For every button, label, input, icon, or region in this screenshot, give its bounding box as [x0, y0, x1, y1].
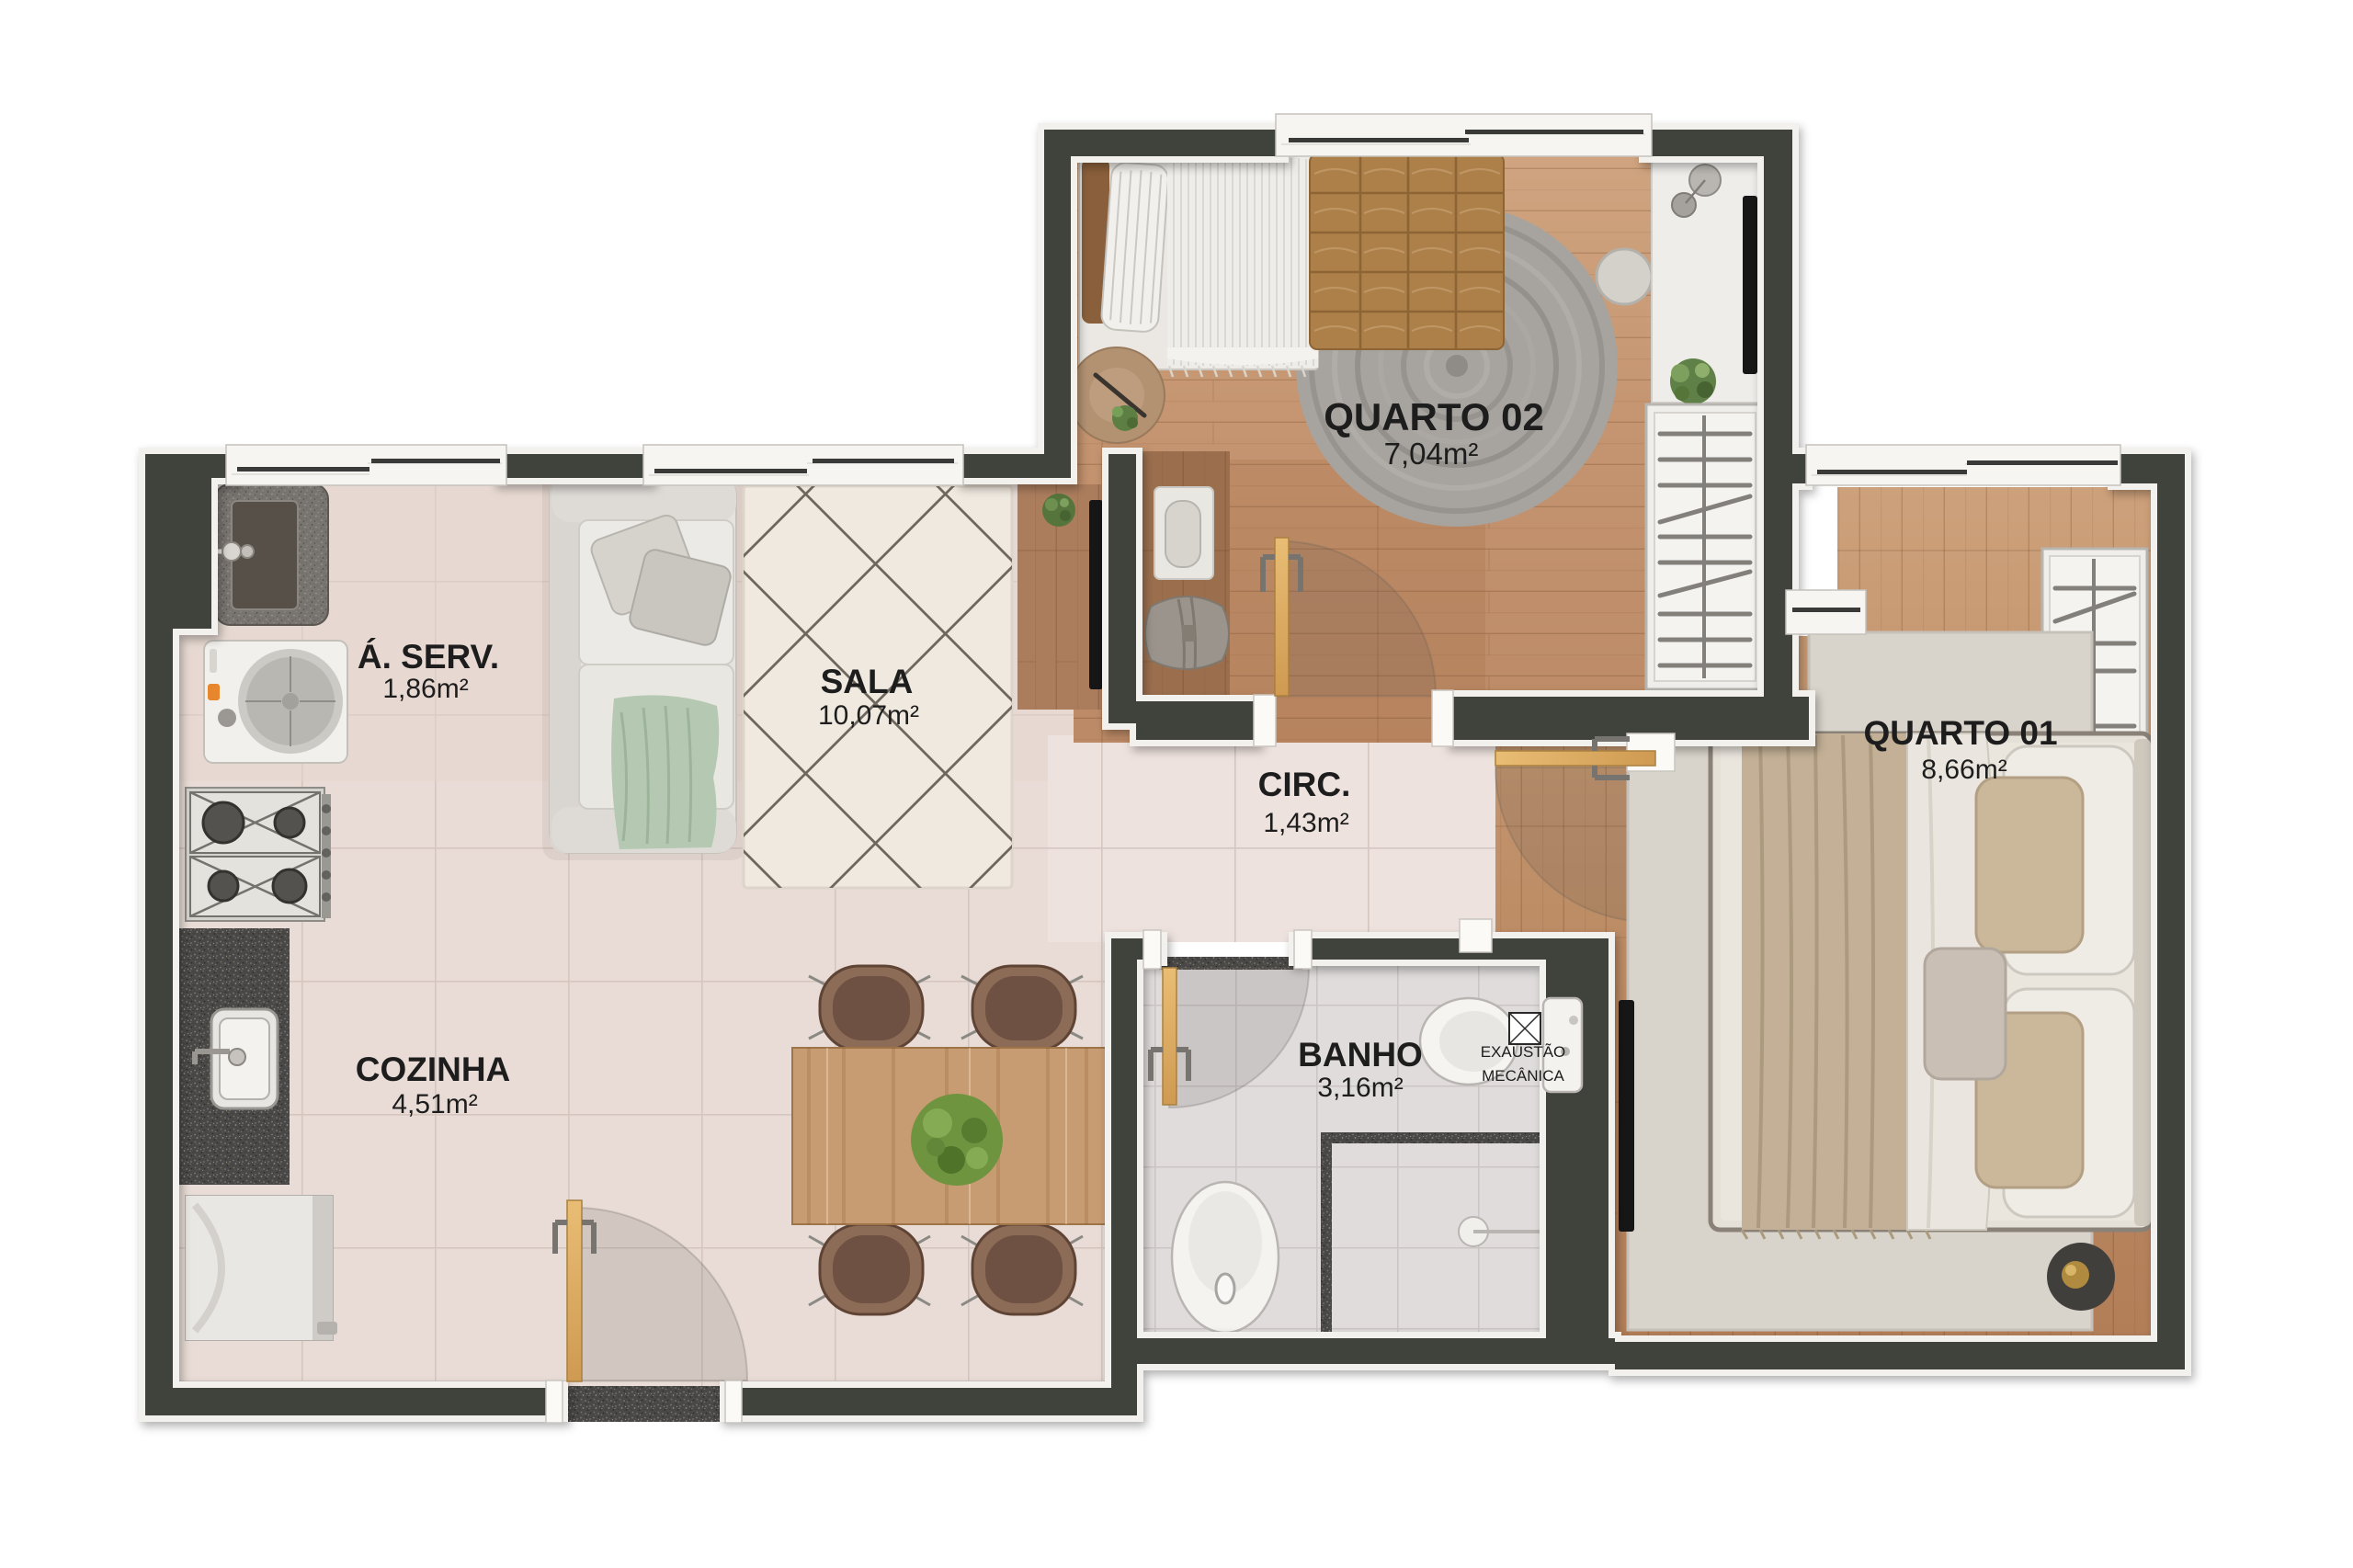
svg-text:1,43m²: 1,43m²: [1263, 808, 1348, 838]
svg-text:MECÂNICA: MECÂNICA: [1482, 1067, 1564, 1085]
svg-text:QUARTO 02: QUARTO 02: [1324, 395, 1544, 438]
svg-text:COZINHA: COZINHA: [356, 1051, 511, 1088]
svg-text:SALA: SALA: [821, 663, 914, 700]
svg-text:QUARTO 01: QUARTO 01: [1863, 714, 2057, 752]
svg-text:Á. SERV.: Á. SERV.: [358, 638, 499, 676]
svg-text:CIRC.: CIRC.: [1258, 766, 1351, 803]
svg-text:BANHO: BANHO: [1298, 1036, 1423, 1074]
svg-text:7,04m²: 7,04m²: [1384, 437, 1479, 471]
svg-text:1,86m²: 1,86m²: [382, 674, 468, 704]
svg-text:8,66m²: 8,66m²: [1921, 755, 2006, 785]
svg-text:4,51m²: 4,51m²: [392, 1089, 477, 1119]
svg-text:EXAUSTÃO: EXAUSTÃO: [1481, 1043, 1566, 1061]
svg-text:3,16m²: 3,16m²: [1317, 1073, 1403, 1103]
svg-text:10,07m²: 10,07m²: [818, 700, 919, 731]
